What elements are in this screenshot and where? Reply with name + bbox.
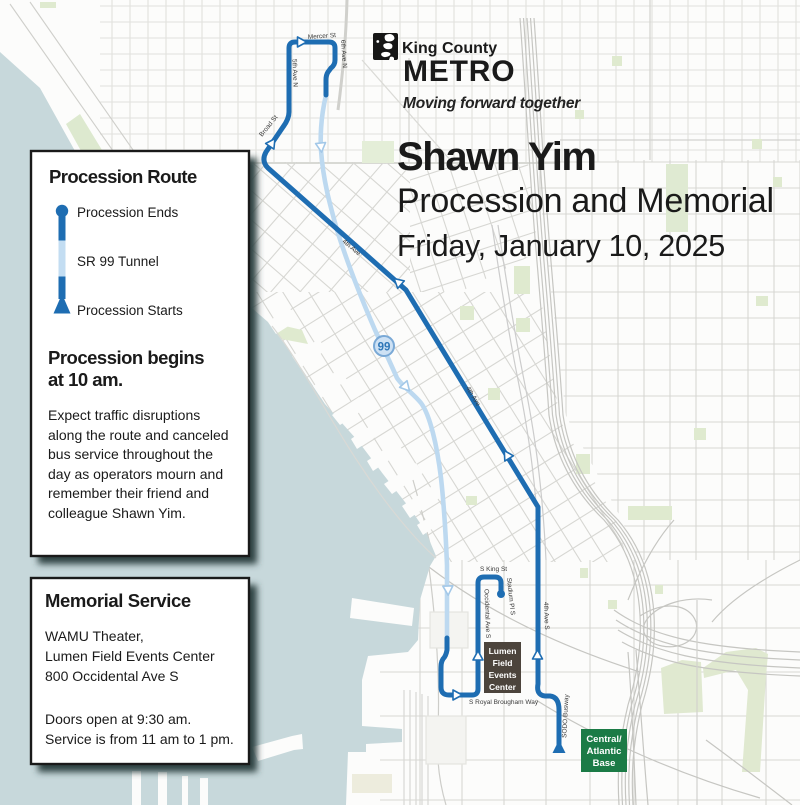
svg-text:Service is from 11 am to 1 pm.: Service is from 11 am to 1 pm. — [45, 731, 234, 747]
svg-text:SR 99 Tunnel: SR 99 Tunnel — [77, 254, 159, 269]
svg-text:5th Ave N: 5th Ave N — [291, 59, 299, 88]
svg-text:colleague Shawn Yim.: colleague Shawn Yim. — [48, 505, 186, 521]
svg-text:Field: Field — [493, 658, 513, 668]
svg-text:Memorial Service: Memorial Service — [45, 590, 191, 611]
svg-text:Moving forward together: Moving forward together — [403, 95, 581, 112]
svg-text:S Royal Brougham Way: S Royal Brougham Way — [469, 699, 539, 706]
svg-text:Lumen Field Events Center: Lumen Field Events Center — [45, 648, 215, 664]
svg-text:WAMU Theater,: WAMU Theater, — [45, 628, 144, 644]
svg-text:Friday, January 10, 2025: Friday, January 10, 2025 — [397, 229, 725, 263]
svg-text:Center: Center — [489, 682, 517, 692]
svg-text:Lumen: Lumen — [489, 646, 517, 656]
svg-text:Procession begins: Procession begins — [48, 347, 204, 368]
svg-text:METRO: METRO — [403, 55, 515, 88]
svg-text:remember their friend and: remember their friend and — [48, 485, 209, 501]
svg-text:Doors open at 9:30 am.: Doors open at 9:30 am. — [45, 711, 191, 727]
svg-text:at 10 am.: at 10 am. — [48, 369, 123, 390]
svg-text:Expect traffic disruptions: Expect traffic disruptions — [48, 407, 200, 423]
svg-text:800 Occidental Ave S: 800 Occidental Ave S — [45, 668, 179, 684]
svg-text:99: 99 — [378, 342, 391, 354]
svg-text:Atlantic: Atlantic — [587, 746, 622, 757]
svg-text:along the route and canceled: along the route and canceled — [48, 427, 229, 443]
svg-text:Base: Base — [593, 758, 616, 769]
svg-text:Central/: Central/ — [586, 734, 622, 745]
svg-text:Procession Ends: Procession Ends — [77, 205, 179, 220]
svg-text:day as operators mourn and: day as operators mourn and — [48, 466, 223, 482]
svg-text:4th Ave S: 4th Ave S — [542, 602, 550, 631]
svg-text:Events: Events — [489, 670, 517, 680]
svg-text:S King St: S King St — [480, 566, 507, 573]
svg-text:Procession Starts: Procession Starts — [77, 303, 183, 318]
svg-text:bus service throughout the: bus service throughout the — [48, 446, 213, 462]
svg-text:Procession Route: Procession Route — [49, 166, 197, 187]
svg-text:Shawn Yim: Shawn Yim — [397, 135, 596, 179]
svg-text:Procession and Memorial: Procession and Memorial — [397, 182, 774, 220]
